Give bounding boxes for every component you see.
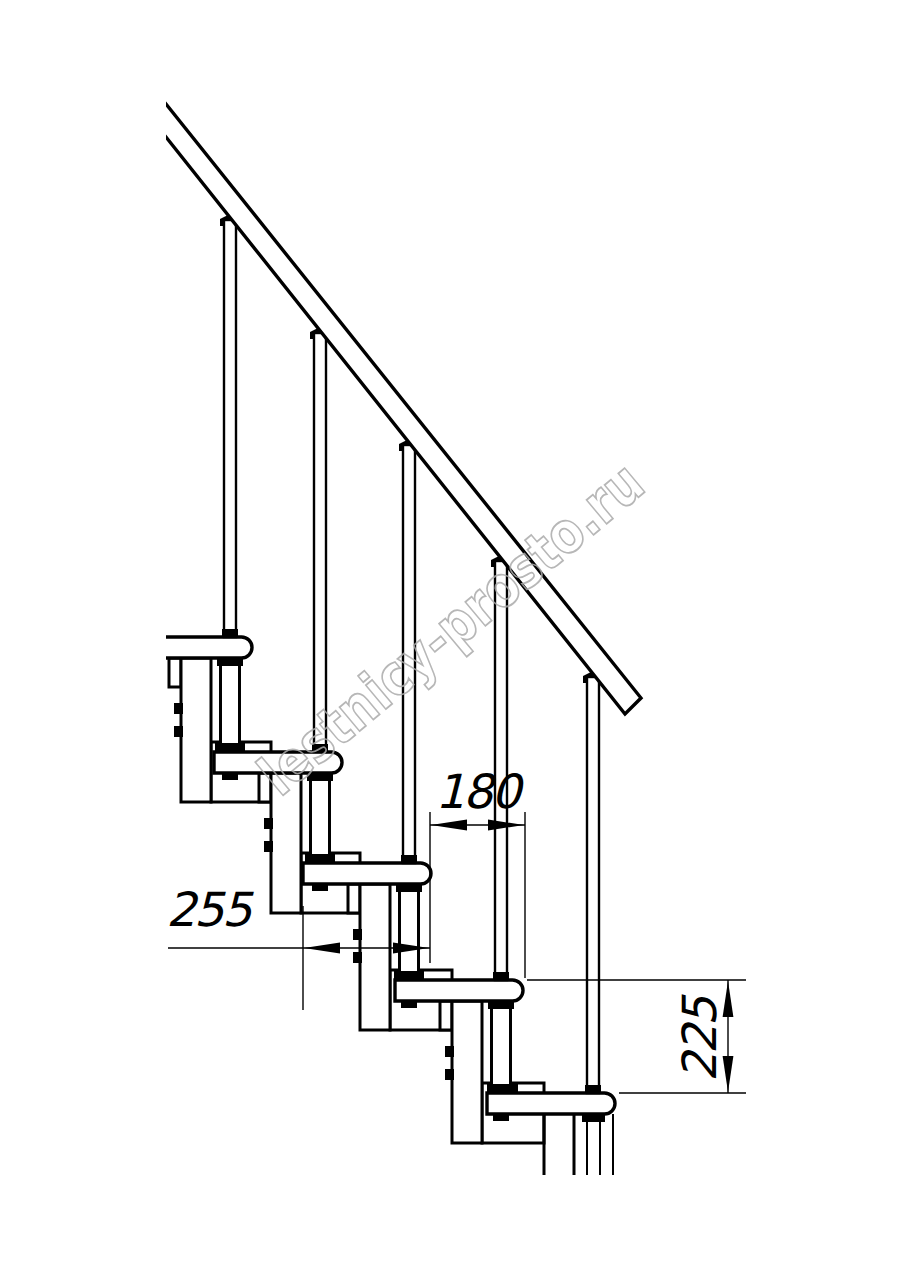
bolt-icon (445, 1046, 454, 1057)
module-tab (440, 1001, 452, 1030)
module-tab (348, 884, 360, 913)
baluster-rod (224, 220, 236, 637)
staircase-side-view-drawing: 255 180 225 lestnicy-prosto.ru (0, 0, 914, 1280)
baluster (220, 209, 240, 637)
baluster-rod (587, 677, 599, 1093)
tread (395, 980, 523, 1001)
tread-stub (222, 773, 238, 780)
riser-tube (492, 1001, 511, 1093)
module-tab (169, 658, 181, 687)
dimension-value-255: 255 (166, 882, 254, 937)
bolt-icon (264, 841, 273, 852)
tread (487, 1093, 615, 1114)
tread (303, 863, 431, 884)
bolt-icon (174, 703, 183, 714)
arrowhead-left-icon (431, 820, 467, 831)
baluster-base-flange (222, 629, 238, 637)
bolt-icon (353, 952, 362, 963)
baluster (583, 666, 603, 1093)
riser-tube-cut (587, 1114, 613, 1175)
crop-mask (0, 0, 166, 1280)
baluster-base-flange (585, 1085, 601, 1093)
baluster-rod (314, 333, 326, 752)
technical-drawing-page: 255 180 225 lestnicy-prosto.ru (0, 0, 914, 1280)
dimension-step-rise: 225 (527, 980, 746, 1093)
tread-stub (493, 1114, 509, 1121)
riser-tube (400, 884, 419, 980)
module-column (181, 658, 211, 802)
module-column (360, 884, 390, 1030)
riser-tube (221, 658, 240, 752)
bolt-icon (174, 726, 183, 737)
bolt-icon (264, 818, 273, 829)
dimension-value-225: 225 (672, 994, 727, 1082)
baluster-base-flange (401, 855, 417, 863)
tread-stub (312, 884, 328, 891)
dimension-step-run: 180 (430, 764, 525, 978)
module-column-cut (544, 1114, 574, 1175)
bolt-icon (353, 929, 362, 940)
tread-stub (401, 1001, 417, 1008)
module-column (452, 1001, 482, 1143)
bolt-icon (445, 1069, 454, 1080)
tread (158, 637, 252, 658)
dimension-value-180: 180 (435, 764, 525, 819)
arrowhead-left-icon (304, 943, 340, 954)
baluster (310, 322, 330, 752)
baluster-base-flange (493, 972, 509, 980)
